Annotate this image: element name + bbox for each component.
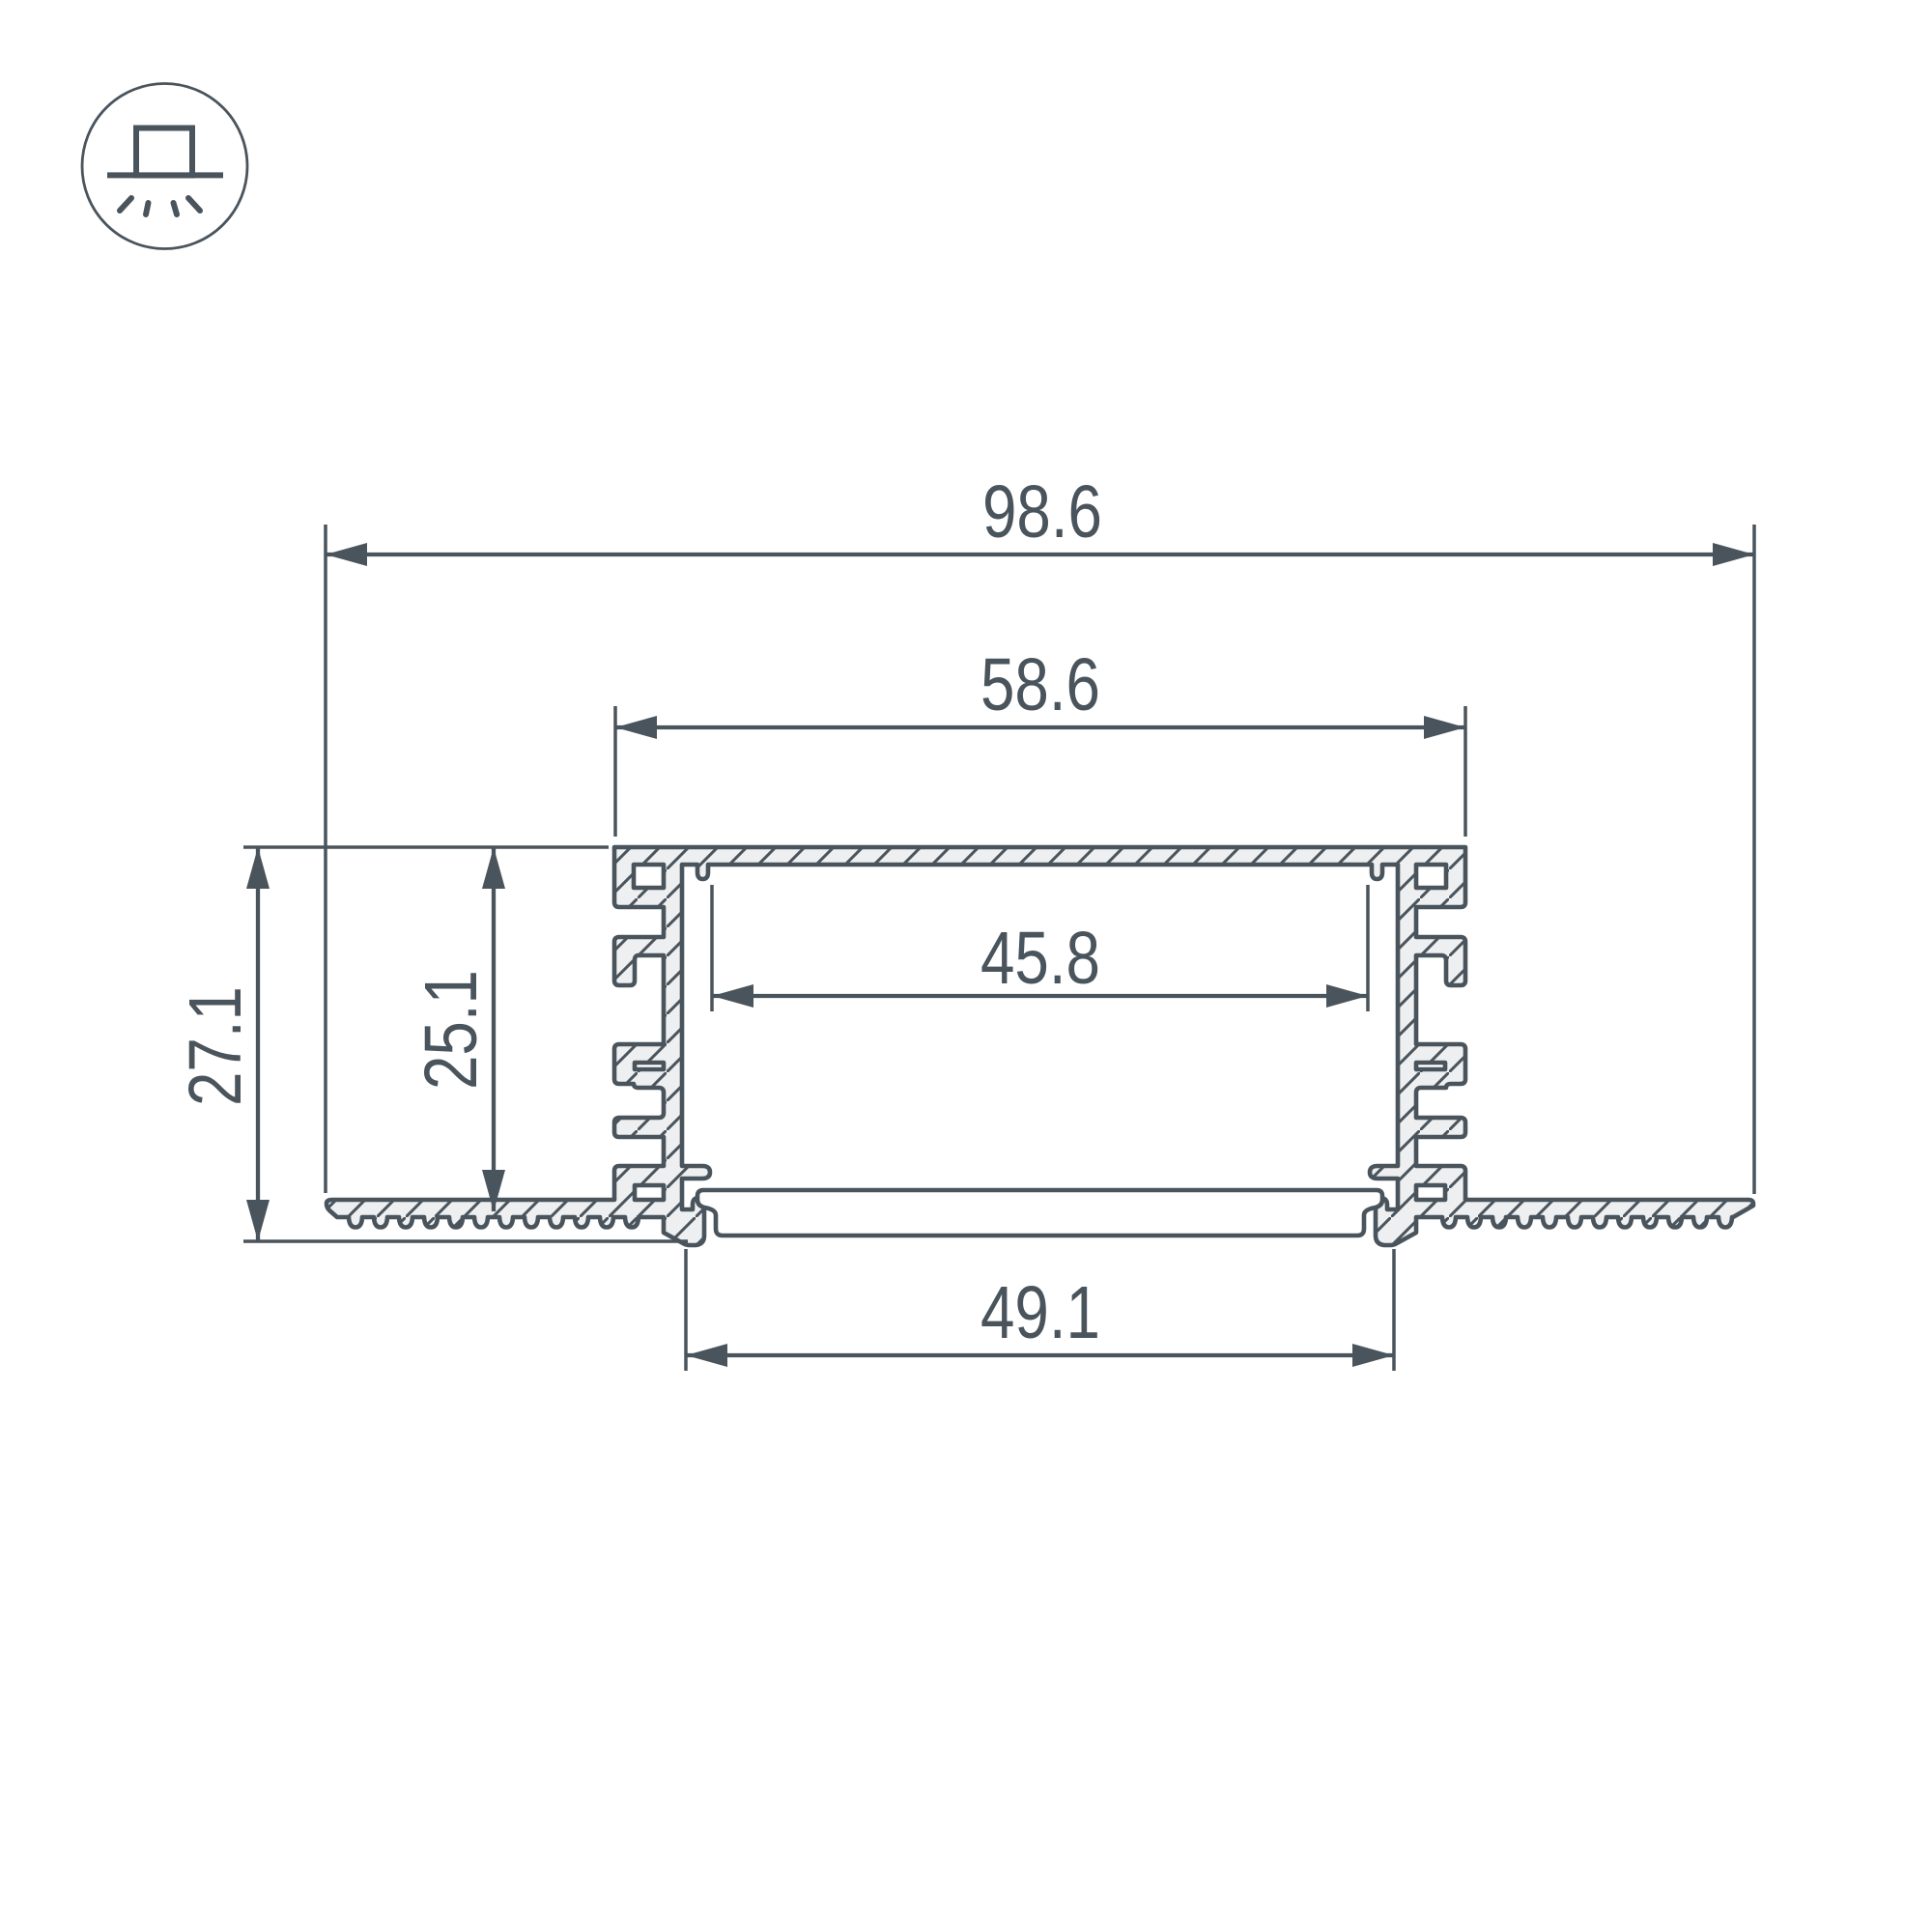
- svg-text:45.8: 45.8: [980, 917, 1100, 1000]
- svg-text:25.1: 25.1: [410, 970, 493, 1090]
- svg-text:49.1: 49.1: [980, 1271, 1100, 1354]
- svg-text:98.6: 98.6: [982, 470, 1102, 554]
- svg-text:27.1: 27.1: [174, 986, 257, 1106]
- svg-text:58.6: 58.6: [980, 643, 1100, 726]
